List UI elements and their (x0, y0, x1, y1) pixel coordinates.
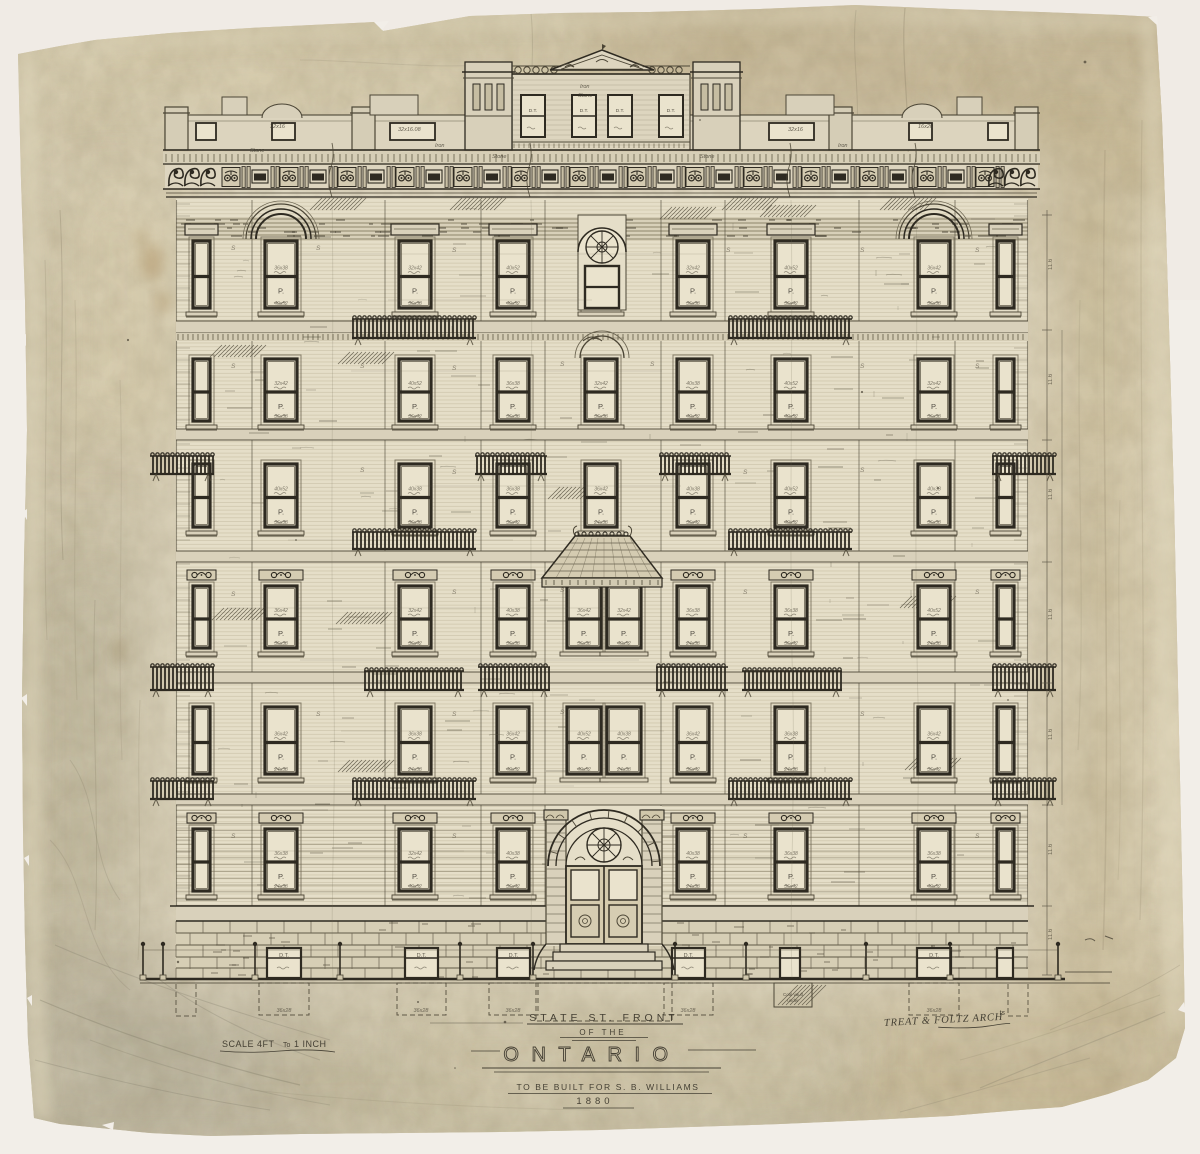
svg-text:36x38: 36x38 (506, 487, 520, 493)
svg-text:S: S (860, 247, 865, 254)
svg-text:P.: P. (931, 629, 937, 638)
svg-text:P.: P. (510, 753, 516, 762)
svg-text:To: To (283, 1042, 291, 1049)
svg-text:P.: P. (788, 629, 794, 638)
svg-text:36x42: 36x42 (686, 767, 700, 773)
svg-text:36x28: 36x28 (414, 1008, 430, 1014)
svg-text:36x38: 36x38 (408, 520, 422, 526)
svg-text:40x38: 40x38 (506, 608, 520, 614)
svg-text:40x52: 40x52 (408, 381, 422, 387)
svg-text:40x52: 40x52 (506, 767, 520, 773)
svg-text:36x42: 36x42 (927, 266, 941, 272)
svg-text:40x38: 40x38 (506, 851, 520, 857)
svg-text:P.: P. (510, 629, 516, 638)
svg-text:40x38: 40x38 (686, 487, 700, 493)
svg-text:P.: P. (510, 287, 516, 296)
svg-text:1880: 1880 (576, 1096, 613, 1107)
svg-text:36x38: 36x38 (274, 641, 288, 647)
svg-text:36x42: 36x42 (274, 608, 288, 614)
svg-text:P.: P. (278, 753, 284, 762)
svg-text:S: S (975, 589, 980, 596)
svg-text:24x38: 24x38 (783, 767, 798, 773)
svg-text:S: S (316, 245, 321, 252)
svg-text:40x52: 40x52 (784, 266, 798, 272)
svg-text:ts: ts (999, 1010, 1005, 1017)
svg-text:40x52: 40x52 (577, 732, 591, 738)
svg-text:36x42: 36x42 (594, 487, 608, 493)
svg-text:S: S (231, 833, 236, 840)
svg-text:D.T.: D.T. (417, 953, 427, 959)
svg-text:40x52: 40x52 (927, 884, 941, 890)
svg-text:P.: P. (690, 629, 696, 638)
svg-text:S: S (452, 247, 457, 254)
svg-text:36x28: 36x28 (681, 1008, 697, 1014)
svg-text:36x38: 36x38 (686, 301, 700, 307)
svg-text:36x38: 36x38 (927, 851, 941, 857)
svg-text:P.: P. (931, 753, 937, 762)
svg-text:S: S (975, 363, 980, 370)
svg-text:24x38: 24x38 (685, 884, 700, 890)
svg-text:P.: P. (598, 402, 604, 411)
svg-text:P.: P. (931, 508, 937, 517)
svg-text:S: S (452, 833, 457, 840)
svg-text:32x42: 32x42 (927, 381, 941, 387)
svg-text:S: S (975, 247, 980, 254)
svg-text:P.: P. (788, 872, 794, 881)
svg-text:TO BE BUILT FOR S. B. WI: TO BE BUILT FOR S. B. WILLIAMS (516, 1082, 699, 1092)
svg-text:P.: P. (412, 287, 418, 296)
svg-text:Stone: Stone (250, 148, 264, 154)
svg-text:P.: P. (412, 508, 418, 517)
svg-text:11.6: 11.6 (1048, 928, 1054, 940)
svg-text:D.T.: D.T. (279, 953, 289, 959)
svg-text:P.: P. (598, 508, 604, 517)
svg-text:40x52: 40x52 (408, 884, 422, 890)
svg-text:36x28: 36x28 (277, 1008, 293, 1014)
svg-text:36x28: 36x28 (506, 1008, 522, 1014)
svg-text:36x42: 36x42 (506, 520, 520, 526)
svg-text:D.T.: D.T. (509, 953, 519, 959)
svg-text:40x52: 40x52 (927, 608, 941, 614)
svg-text:32x16.08: 32x16.08 (398, 127, 422, 133)
svg-text:Stone: Stone (492, 154, 506, 160)
svg-text:40x52: 40x52 (274, 487, 288, 493)
svg-text:32x42: 32x42 (408, 851, 422, 857)
svg-text:24x38: 24x38 (926, 641, 941, 647)
svg-text:36x42: 36x42 (784, 641, 798, 647)
svg-text:36x42: 36x42 (408, 414, 422, 420)
svg-text:S: S (231, 245, 236, 252)
svg-text:40x52: 40x52 (577, 767, 591, 773)
svg-text:11.6: 11.6 (1048, 608, 1054, 620)
svg-text:P.: P. (412, 629, 418, 638)
svg-text:36x38: 36x38 (927, 414, 941, 420)
svg-text:36x38: 36x38 (927, 301, 941, 307)
svg-text:P.: P. (412, 872, 418, 881)
svg-text:P.: P. (621, 629, 627, 638)
svg-text:Iron: Iron (580, 84, 589, 90)
svg-text:P.: P. (510, 872, 516, 881)
svg-text:P.: P. (788, 287, 794, 296)
svg-text:36x38: 36x38 (784, 851, 798, 857)
svg-text:36x38: 36x38 (784, 732, 798, 738)
svg-text:36x38: 36x38 (408, 301, 422, 307)
svg-text:36x38: 36x38 (506, 414, 520, 420)
svg-text:24x38: 24x38 (273, 767, 288, 773)
svg-text:S: S (316, 711, 321, 718)
svg-text:Stone: Stone (578, 93, 592, 99)
svg-text:S: S (726, 247, 731, 254)
svg-text:40x52: 40x52 (784, 381, 798, 387)
svg-text:32x42: 32x42 (408, 608, 422, 614)
svg-text:P.: P. (510, 508, 516, 517)
svg-text:OF THE: OF THE (579, 1028, 626, 1037)
svg-text:40x38: 40x38 (617, 732, 631, 738)
svg-text:11.6: 11.6 (1048, 373, 1054, 385)
svg-text:P.: P. (690, 508, 696, 517)
svg-text:32x42: 32x42 (594, 381, 608, 387)
svg-text:11.6: 11.6 (1048, 258, 1054, 270)
svg-text:24x38: 24x38 (273, 884, 288, 890)
svg-text:36x42: 36x42 (408, 641, 422, 647)
svg-text:11.6: 11.6 (1048, 488, 1054, 500)
svg-text:40x52: 40x52 (506, 266, 520, 272)
svg-text:36x38: 36x38 (274, 520, 288, 526)
svg-text:24x38: 24x38 (407, 767, 422, 773)
svg-text:32x16: 32x16 (788, 127, 804, 133)
svg-text:S: S (743, 833, 748, 840)
svg-text:S: S (360, 467, 365, 474)
svg-text:36x28: 36x28 (927, 1008, 943, 1014)
svg-text:11.6: 11.6 (1048, 843, 1054, 855)
svg-text:ONTARIO: ONTARIO (503, 1044, 680, 1066)
svg-text:40x38: 40x38 (686, 381, 700, 387)
svg-text:36x42: 36x42 (927, 732, 941, 738)
svg-text:40x38: 40x38 (927, 487, 941, 493)
svg-text:36x42: 36x42 (506, 732, 520, 738)
svg-text:32x42: 32x42 (686, 266, 700, 272)
svg-text:40x52: 40x52 (686, 414, 700, 420)
svg-text:P.: P. (690, 753, 696, 762)
svg-text:P.: P. (931, 287, 937, 296)
svg-text:36x42: 36x42 (784, 884, 798, 890)
svg-text:36x38: 36x38 (927, 520, 941, 526)
svg-text:36x42: 36x42 (784, 301, 798, 307)
svg-text:P.: P. (581, 753, 587, 762)
svg-text:S: S (452, 589, 457, 596)
svg-text:Iron: Iron (435, 143, 444, 149)
svg-text:S: S (231, 591, 236, 598)
svg-text:36x42: 36x42 (577, 608, 591, 614)
svg-text:36x42: 36x42 (686, 520, 700, 526)
svg-text:P.: P. (690, 402, 696, 411)
svg-text:36x38: 36x38 (274, 851, 288, 857)
svg-text:SCALE 4FT: SCALE 4FT (222, 1039, 275, 1049)
svg-text:P.: P. (690, 872, 696, 881)
svg-text:36x42: 36x42 (274, 732, 288, 738)
svg-text:36x38: 36x38 (506, 641, 520, 647)
svg-text:36x38: 36x38 (408, 732, 422, 738)
svg-text:36x42: 36x42 (686, 732, 700, 738)
svg-text:36x42: 36x42 (927, 767, 941, 773)
svg-text:40x38: 40x38 (408, 487, 422, 493)
svg-text:STATE ST. FRONT: STATE ST. FRONT (529, 1012, 678, 1024)
svg-text:40x52: 40x52 (506, 301, 520, 307)
svg-text:36x38: 36x38 (577, 641, 591, 647)
svg-text:36x42: 36x42 (506, 884, 520, 890)
svg-text:D.T.: D.T. (929, 953, 939, 959)
svg-text:S: S (743, 589, 748, 596)
svg-text:36x38: 36x38 (686, 608, 700, 614)
svg-text:D.T.: D.T. (616, 108, 625, 114)
svg-text:32x42: 32x42 (274, 381, 288, 387)
svg-text:P.: P. (412, 753, 418, 762)
svg-text:Stone: Stone (700, 154, 714, 160)
svg-text:P.: P. (690, 287, 696, 296)
svg-text:36x38: 36x38 (274, 266, 288, 272)
svg-text:Iron: Iron (838, 143, 847, 149)
svg-text:36x38: 36x38 (506, 381, 520, 387)
svg-text:40x52: 40x52 (617, 641, 631, 647)
svg-text:16x20: 16x20 (918, 124, 934, 130)
svg-text:S: S (860, 711, 865, 718)
svg-text:S: S (650, 361, 655, 368)
svg-text:P.: P. (621, 753, 627, 762)
svg-text:P.: P. (278, 872, 284, 881)
svg-text:32x42: 32x42 (617, 608, 631, 614)
svg-text:S: S (860, 363, 865, 370)
svg-text:P.: P. (278, 508, 284, 517)
svg-text:P.: P. (412, 402, 418, 411)
svg-text:D.T.: D.T. (684, 953, 694, 959)
svg-text:32x42: 32x42 (408, 266, 422, 272)
svg-text:24x38: 24x38 (593, 520, 608, 526)
svg-text:D.T.: D.T. (529, 108, 538, 114)
svg-text:P.: P. (278, 287, 284, 296)
svg-text:1 INCH: 1 INCH (294, 1039, 327, 1049)
svg-text:S: S (452, 711, 457, 718)
svg-text:P.: P. (278, 402, 284, 411)
svg-text:11.6: 11.6 (1048, 728, 1054, 740)
svg-text:S: S (860, 467, 865, 474)
svg-text:24x38: 24x38 (616, 767, 631, 773)
svg-text:P.: P. (278, 629, 284, 638)
svg-text:P.: P. (931, 872, 937, 881)
svg-text:40x38: 40x38 (686, 851, 700, 857)
svg-text:S: S (452, 469, 457, 476)
svg-text:P.: P. (581, 629, 587, 638)
svg-text:D.T.: D.T. (667, 108, 676, 114)
svg-text:P.: P. (931, 402, 937, 411)
svg-text:S: S (975, 833, 980, 840)
svg-text:S: S (560, 361, 565, 368)
svg-text:S: S (231, 363, 236, 370)
svg-text:32x16: 32x16 (270, 124, 286, 130)
svg-text:S: S (743, 469, 748, 476)
svg-text:24x38: 24x38 (685, 641, 700, 647)
svg-text:P.: P. (510, 402, 516, 411)
svg-text:40x52: 40x52 (274, 301, 288, 307)
svg-text:S: S (360, 363, 365, 370)
svg-text:36x38: 36x38 (594, 414, 608, 420)
svg-text:36x38: 36x38 (274, 414, 288, 420)
svg-text:D.T.: D.T. (580, 108, 589, 114)
